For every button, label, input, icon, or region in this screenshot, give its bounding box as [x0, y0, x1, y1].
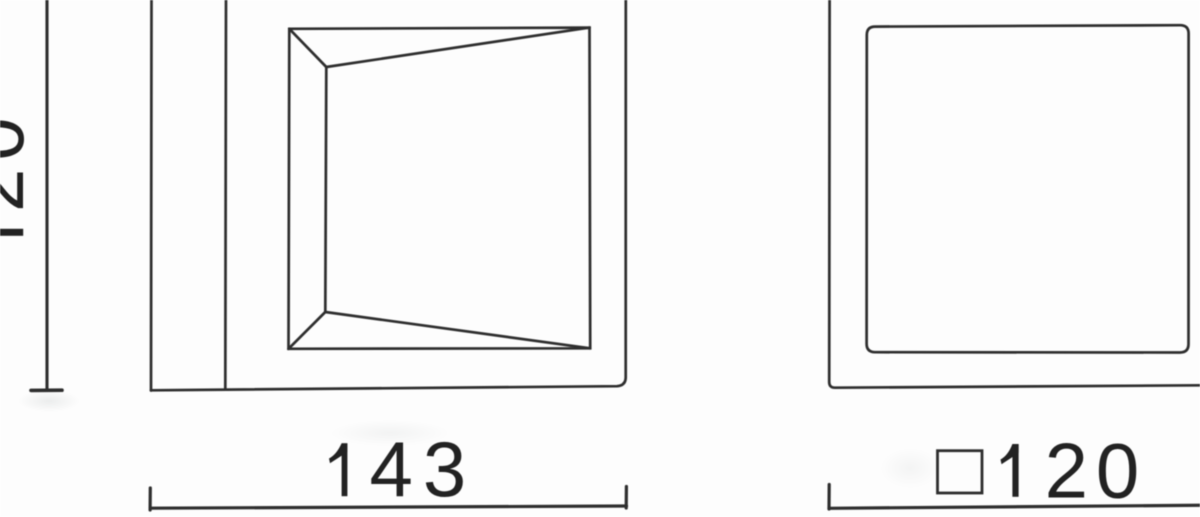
- svg-text:20: 20: [0, 109, 40, 212]
- svg-text:43: 43: [370, 425, 477, 513]
- svg-text:20: 20: [1045, 427, 1148, 515]
